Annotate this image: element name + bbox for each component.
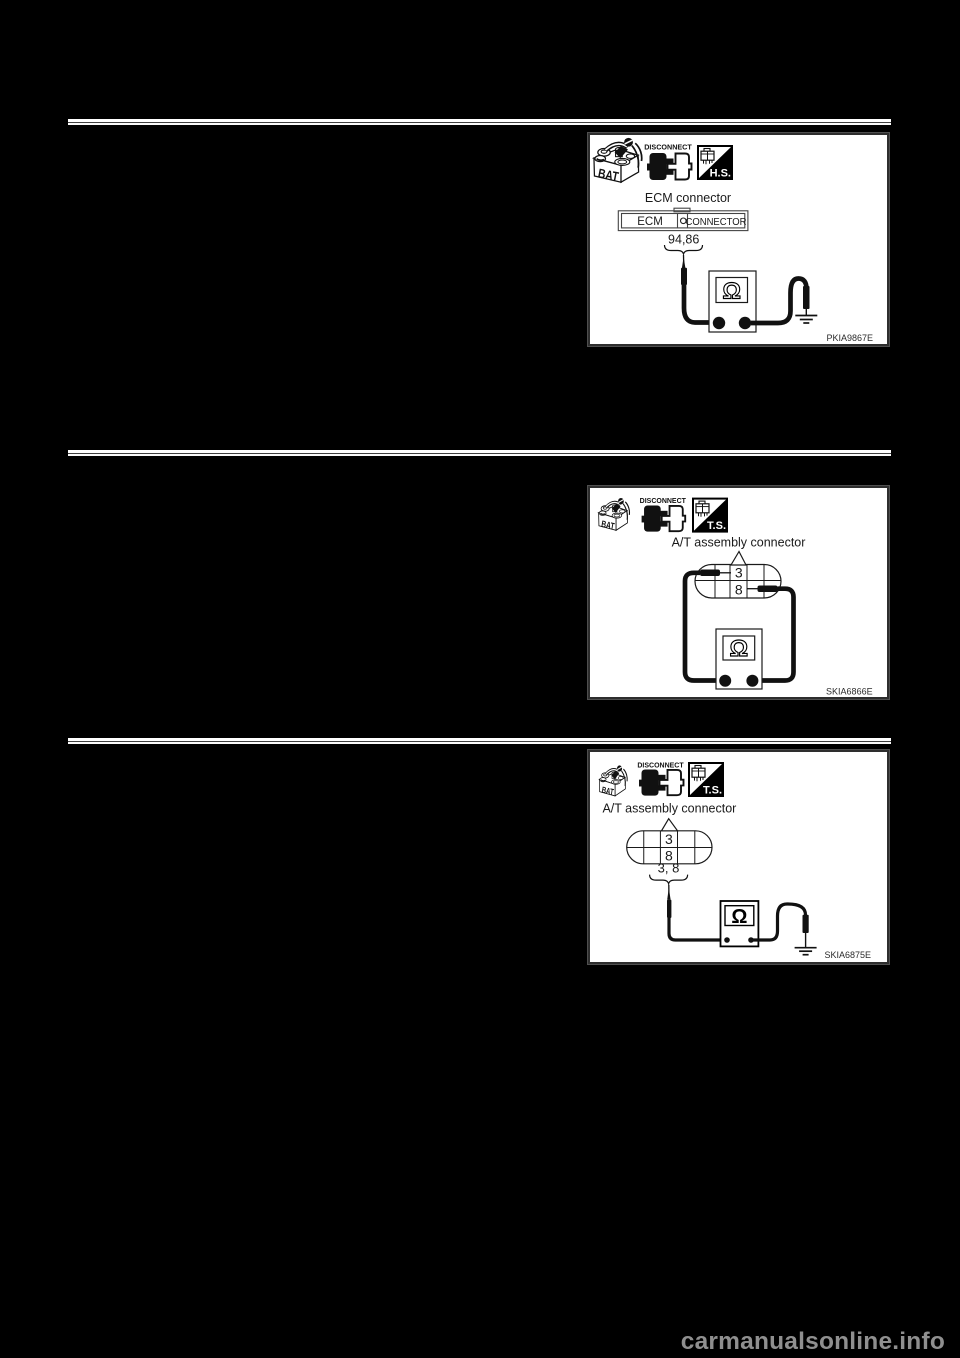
- svg-text:T.S.: T.S.: [707, 520, 726, 532]
- svg-text:T.S.: T.S.: [703, 785, 722, 797]
- svg-text:CONNECTOR: CONNECTOR: [685, 217, 746, 228]
- svg-text:DISCONNECT: DISCONNECT: [644, 143, 692, 152]
- svg-text:DISCONNECT: DISCONNECT: [637, 763, 684, 770]
- svg-text:A/T assembly connector: A/T assembly connector: [602, 802, 736, 816]
- svg-text:A/T assembly connector: A/T assembly connector: [672, 536, 806, 550]
- svg-text:Ω: Ω: [722, 278, 740, 304]
- svg-text:3: 3: [735, 565, 743, 581]
- svg-text:ECM: ECM: [637, 216, 663, 228]
- svg-text:94,86: 94,86: [668, 233, 699, 247]
- svg-text:ECM connector: ECM connector: [645, 191, 731, 205]
- svg-text:Ω: Ω: [730, 635, 748, 661]
- svg-text:3: 3: [665, 831, 673, 847]
- svg-text:PKIA9867E: PKIA9867E: [826, 333, 873, 343]
- svg-text:3, 8: 3, 8: [658, 860, 680, 875]
- svg-text:SKIA6866E: SKIA6866E: [826, 687, 873, 697]
- svg-text:H.S.: H.S.: [710, 168, 731, 180]
- svg-text:DISCONNECT: DISCONNECT: [640, 498, 687, 505]
- svg-text:Ω: Ω: [731, 906, 747, 928]
- svg-text:8: 8: [735, 581, 743, 597]
- svg-text:SKIA6875E: SKIA6875E: [824, 950, 871, 960]
